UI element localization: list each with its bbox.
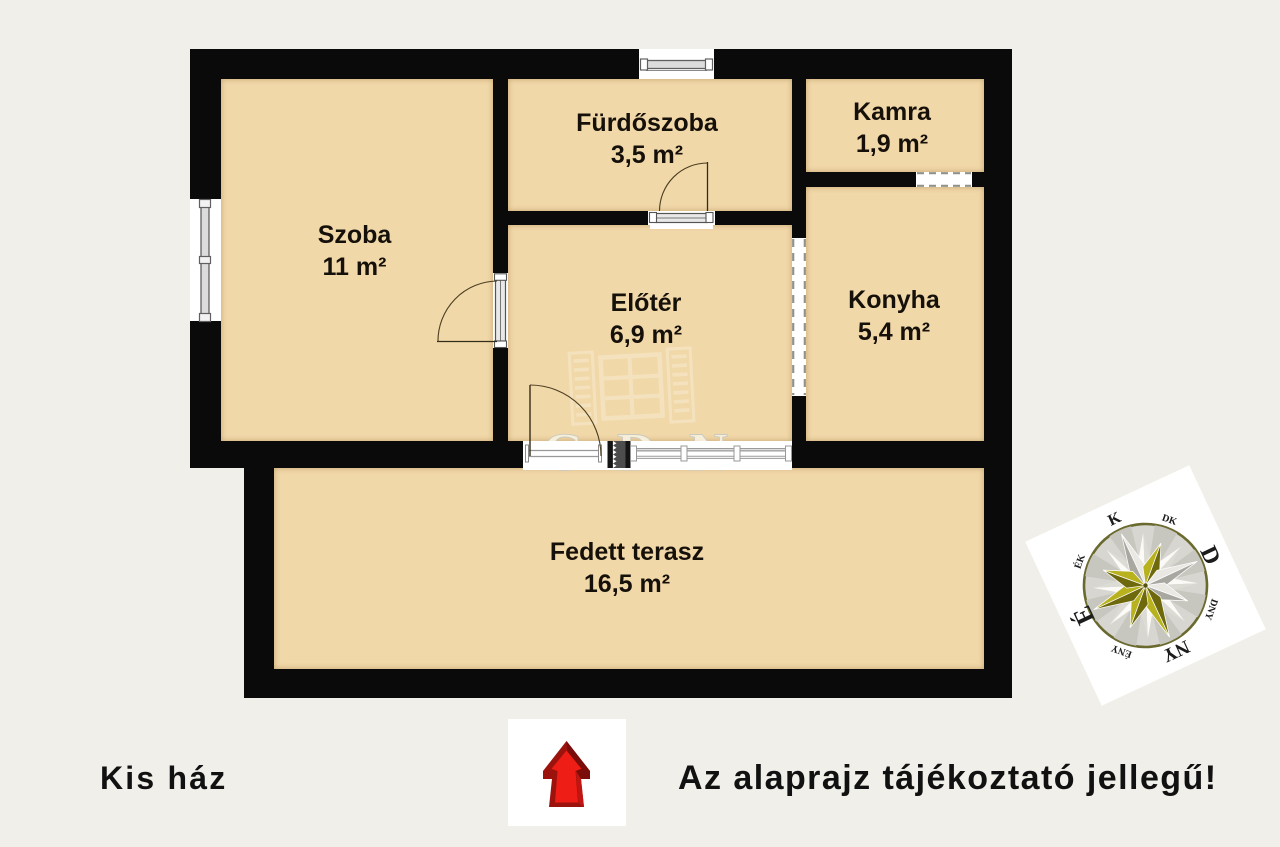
svg-text:K: K [1105,508,1124,529]
svg-text:ÉK: ÉK [1071,552,1087,570]
